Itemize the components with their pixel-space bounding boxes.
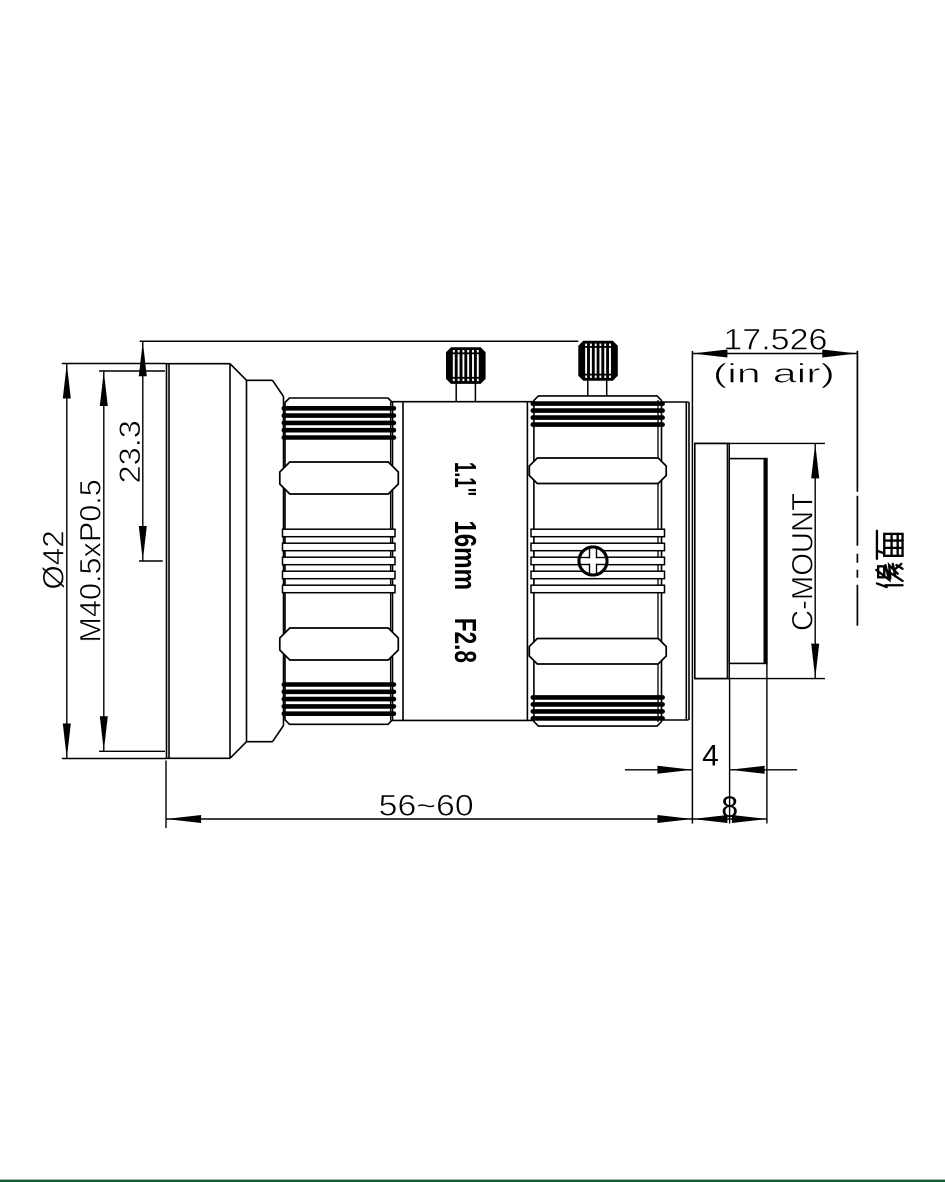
svg-text:17.526: 17.526 <box>723 324 827 357</box>
svg-text:(in air): (in air) <box>713 358 835 388</box>
svg-text:56~60: 56~60 <box>379 790 474 823</box>
svg-text:M40.5xP0.5: M40.5xP0.5 <box>75 479 108 642</box>
svg-text:F2.8: F2.8 <box>448 618 482 663</box>
svg-text:1.1": 1.1" <box>448 462 482 496</box>
svg-text:C-MOUNT: C-MOUNT <box>787 493 820 631</box>
svg-text:23.3: 23.3 <box>114 420 147 483</box>
svg-text:16mm: 16mm <box>448 520 482 590</box>
svg-text:Ø42: Ø42 <box>38 530 71 589</box>
svg-text:8: 8 <box>721 791 738 824</box>
svg-text:4: 4 <box>702 740 719 773</box>
